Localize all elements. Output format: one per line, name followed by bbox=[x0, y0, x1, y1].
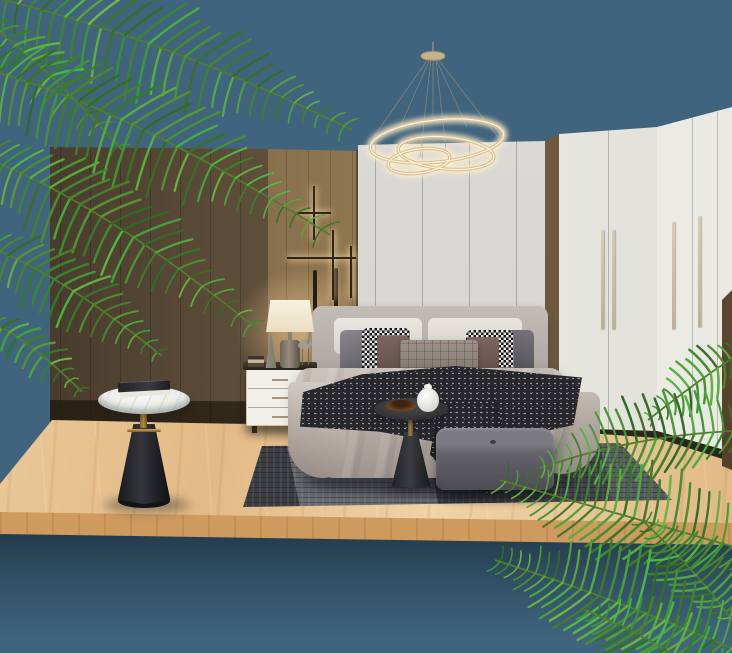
ottoman-tuft bbox=[490, 440, 496, 444]
platform-shadow bbox=[0, 528, 732, 638]
bedroom-render bbox=[0, 0, 732, 653]
chandelier-canopy bbox=[421, 52, 445, 61]
wardrobe-handle bbox=[698, 216, 701, 328]
wardrobe-handle bbox=[601, 230, 604, 330]
wardrobe-handle bbox=[672, 222, 675, 330]
wardrobe-seam bbox=[608, 130, 609, 436]
nightstand-leg bbox=[252, 426, 257, 433]
drawer-handle bbox=[272, 416, 288, 418]
wardrobe-handle bbox=[612, 230, 615, 330]
wall-groove bbox=[334, 268, 338, 308]
chandelier-cables bbox=[373, 59, 500, 157]
ottoman-bench bbox=[436, 428, 554, 490]
drawer-handle bbox=[272, 379, 288, 381]
table-lamp-shade bbox=[266, 300, 314, 332]
side-table-gold-ring bbox=[127, 429, 161, 432]
decor-books bbox=[248, 356, 264, 367]
crane-figurine-leg bbox=[302, 349, 303, 365]
white-vase bbox=[417, 388, 439, 412]
wardrobe-seam bbox=[717, 112, 718, 460]
drawer-handle bbox=[272, 397, 288, 399]
wooden-bowl bbox=[386, 400, 416, 411]
crane-figurine-leg bbox=[308, 349, 309, 365]
wardrobe-seam bbox=[692, 118, 693, 454]
